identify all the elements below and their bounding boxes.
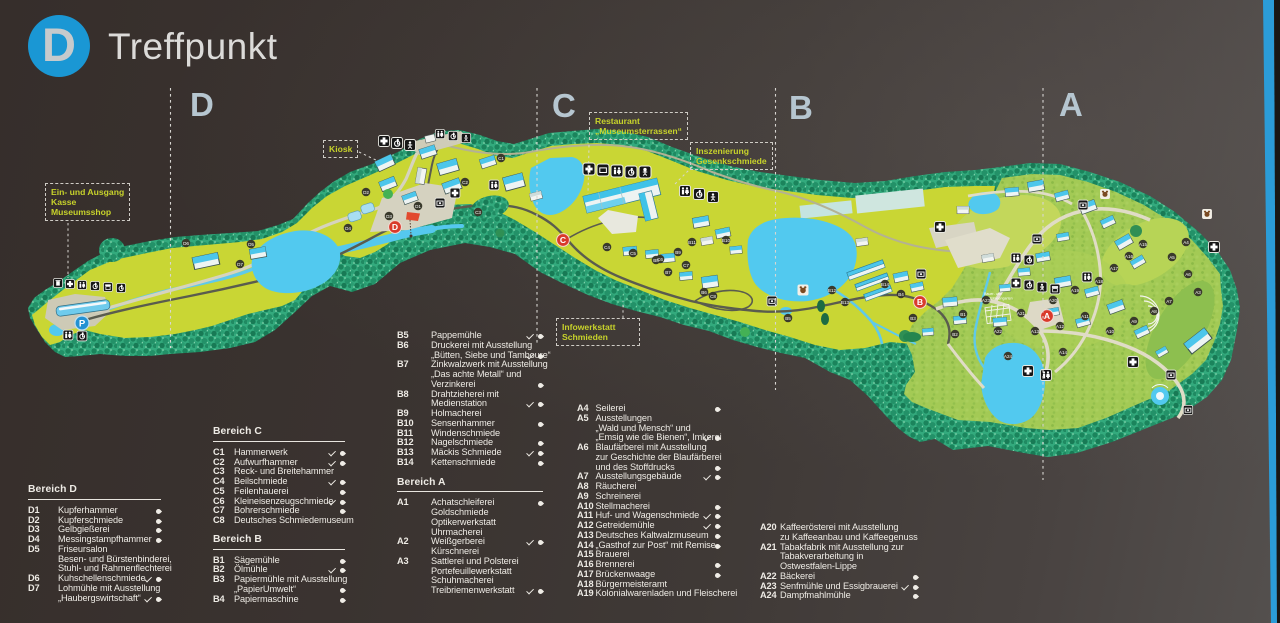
svg-text:B10: B10 — [722, 238, 731, 243]
svg-text:A3: A3 — [1195, 290, 1201, 295]
svg-text:B11: B11 — [688, 240, 696, 245]
svg-text:A4: A4 — [1183, 240, 1189, 245]
svg-text:D: D — [392, 222, 398, 232]
svg-text:C4: C4 — [604, 245, 610, 250]
svg-text:C5: C5 — [630, 251, 636, 256]
svg-text:B9: B9 — [675, 250, 681, 255]
svg-text:A6: A6 — [1185, 272, 1191, 277]
svg-text:C8: C8 — [710, 294, 716, 299]
svg-text:A11: A11 — [1081, 314, 1089, 319]
svg-text:B2: B2 — [952, 332, 958, 337]
svg-text:D3: D3 — [386, 214, 392, 219]
svg-text:C1: C1 — [498, 156, 504, 161]
svg-text:D1: D1 — [415, 204, 421, 209]
svg-text:A21: A21 — [1017, 311, 1026, 316]
svg-text:A10: A10 — [1106, 329, 1115, 334]
svg-text:D4: D4 — [345, 226, 351, 231]
svg-text:B6: B6 — [701, 290, 707, 295]
svg-text:A7: A7 — [1166, 299, 1172, 304]
svg-text:A15: A15 — [1139, 242, 1148, 247]
svg-text:A12: A12 — [1056, 324, 1065, 329]
svg-text:B4: B4 — [898, 292, 904, 297]
svg-text:A14: A14 — [1059, 350, 1068, 355]
svg-text:B13: B13 — [841, 300, 850, 305]
svg-text:A19: A19 — [1071, 288, 1080, 293]
svg-text:D7: D7 — [237, 262, 243, 267]
svg-text:C7: C7 — [683, 263, 689, 268]
svg-text:D5: D5 — [248, 242, 254, 247]
svg-text:C3: C3 — [475, 210, 481, 215]
svg-text:B1: B1 — [960, 312, 966, 317]
svg-text:A5: A5 — [1169, 255, 1175, 260]
svg-text:A13: A13 — [1031, 329, 1040, 334]
svg-text:B: B — [917, 297, 923, 307]
svg-text:D6: D6 — [183, 241, 189, 246]
svg-text:A17: A17 — [1110, 266, 1119, 271]
svg-text:A23: A23 — [982, 298, 991, 303]
svg-text:C: C — [560, 235, 566, 245]
svg-text:A16: A16 — [1125, 254, 1134, 259]
svg-text:A18: A18 — [1095, 279, 1104, 284]
svg-text:B14: B14 — [881, 282, 890, 287]
svg-text:A: A — [1044, 311, 1050, 321]
svg-text:P: P — [79, 319, 86, 330]
svg-text:A8: A8 — [1151, 309, 1157, 314]
svg-text:Bauer- und: Bauer- und — [984, 292, 1002, 296]
svg-text:B3: B3 — [910, 316, 916, 321]
svg-text:D2: D2 — [363, 190, 369, 195]
svg-text:B7: B7 — [665, 270, 671, 275]
svg-text:A20: A20 — [1049, 298, 1058, 303]
svg-text:C2: C2 — [462, 180, 468, 185]
svg-text:A22: A22 — [994, 329, 1003, 334]
svg-text:B12: B12 — [828, 288, 837, 293]
svg-text:B5: B5 — [785, 316, 791, 321]
svg-text:A24: A24 — [1004, 354, 1013, 359]
svg-text:B8: B8 — [653, 258, 659, 263]
svg-text:A9: A9 — [1131, 319, 1137, 324]
